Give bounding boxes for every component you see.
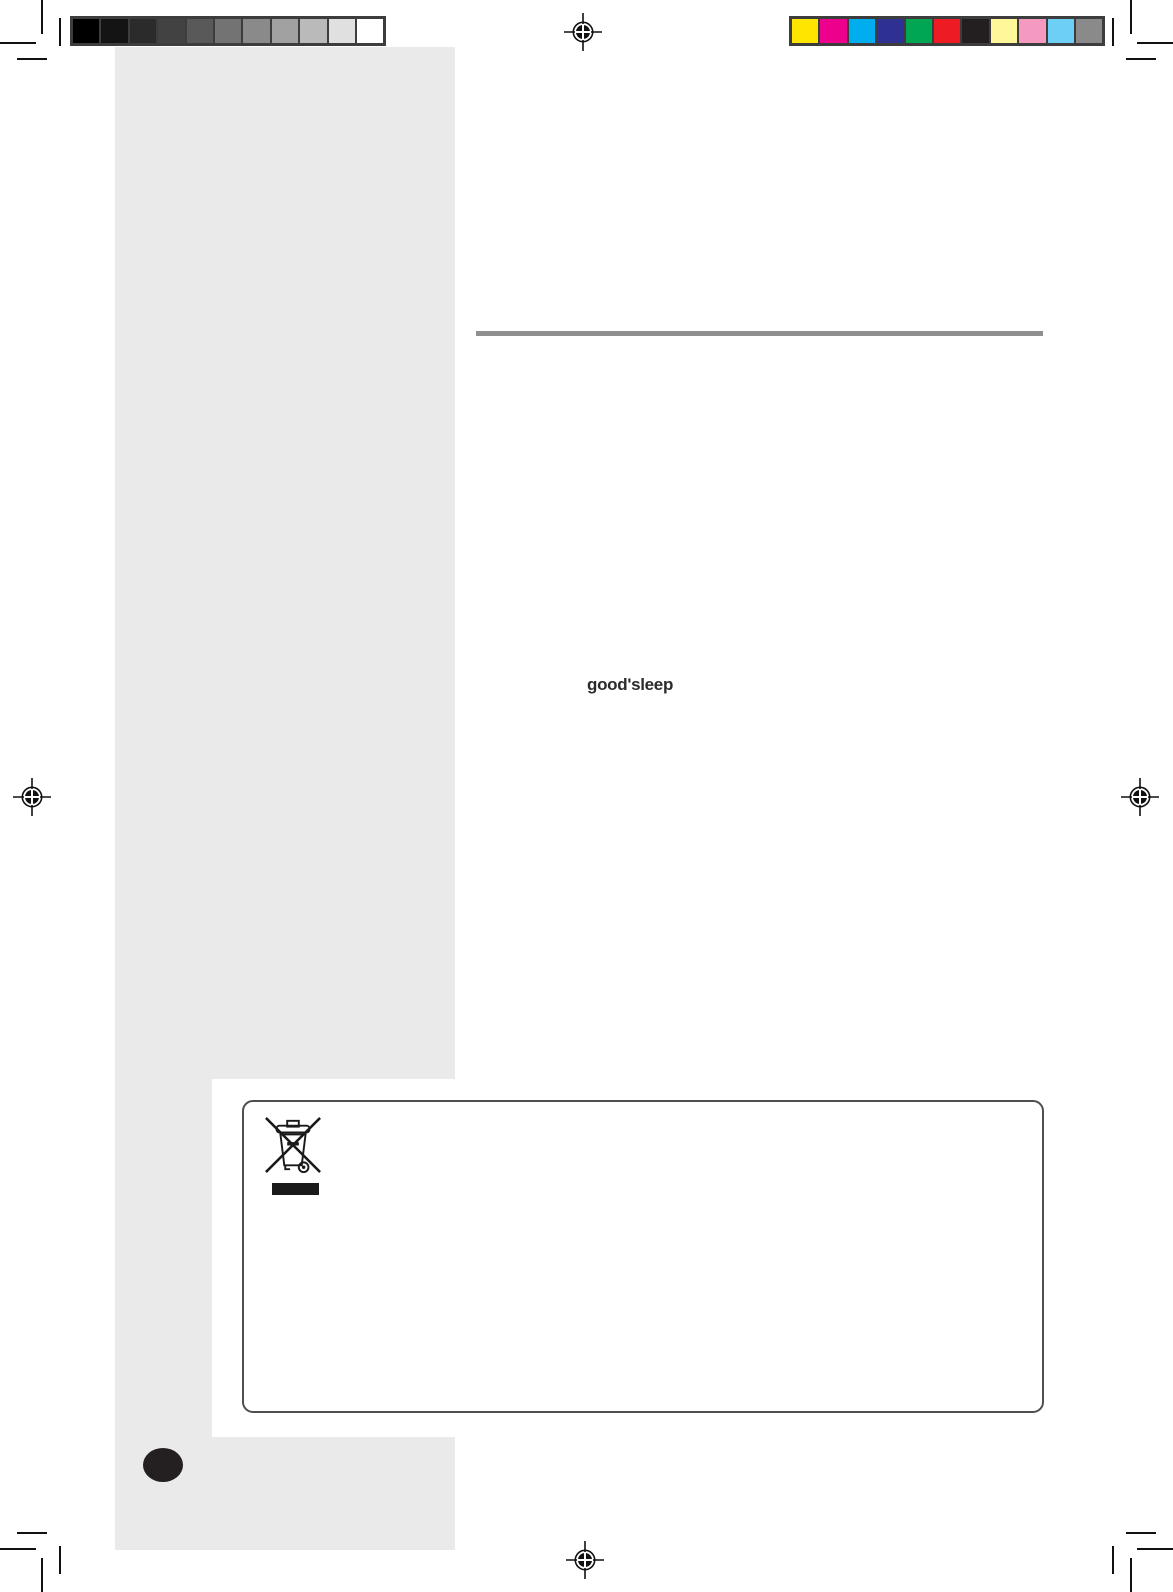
- crop-mark: [17, 58, 47, 60]
- calibration-swatch: [298, 19, 326, 43]
- calibration-swatch: [327, 19, 355, 43]
- calibration-swatch: [875, 19, 903, 43]
- calibration-swatch: [904, 19, 932, 43]
- scanned-page: good'sleep: [0, 0, 1173, 1592]
- calibration-swatch: [1074, 19, 1102, 43]
- crop-mark: [1126, 58, 1156, 60]
- calibration-swatch: [818, 19, 846, 43]
- weee-black-bar: [272, 1183, 319, 1195]
- crop-mark: [41, 0, 43, 34]
- calibration-swatch: [355, 19, 383, 43]
- calibration-swatch: [1046, 19, 1074, 43]
- calibration-swatch: [185, 19, 213, 43]
- crop-mark: [1137, 1548, 1173, 1550]
- color-calibration-bar: [789, 16, 1105, 46]
- calibration-swatch: [1017, 19, 1045, 43]
- weee-crossed-out-wheeled-bin-icon: [264, 1113, 322, 1177]
- registration-mark-icon: [563, 12, 603, 52]
- brand-text: good'sleep: [587, 675, 673, 695]
- calibration-swatch: [989, 19, 1017, 43]
- calibration-swatch: [792, 19, 818, 43]
- crop-mark: [0, 42, 36, 44]
- section-divider: [476, 331, 1043, 336]
- calibration-swatch: [128, 19, 156, 43]
- crop-mark: [59, 18, 61, 46]
- calibration-swatch: [99, 19, 127, 43]
- sidebar-band-strip: [115, 1079, 212, 1437]
- page-number-dot: [143, 1448, 183, 1482]
- crop-mark: [1130, 1558, 1132, 1592]
- sidebar-band-top: [115, 47, 455, 1079]
- weee-notice-box: [242, 1100, 1044, 1413]
- grayscale-calibration-bar: [70, 16, 386, 46]
- calibration-swatch: [241, 19, 269, 43]
- crop-mark: [17, 1532, 47, 1534]
- registration-mark-icon: [1120, 777, 1160, 817]
- crop-mark: [1112, 1546, 1114, 1574]
- crop-mark: [1137, 42, 1173, 44]
- calibration-swatch: [270, 19, 298, 43]
- crop-mark: [41, 1558, 43, 1592]
- calibration-swatch: [847, 19, 875, 43]
- calibration-swatch: [73, 19, 99, 43]
- calibration-swatch: [156, 19, 184, 43]
- registration-mark-icon: [12, 777, 52, 817]
- registration-mark-icon: [565, 1540, 605, 1580]
- crop-mark: [59, 1546, 61, 1574]
- crop-mark: [0, 1548, 36, 1550]
- calibration-swatch: [932, 19, 960, 43]
- crop-mark: [1112, 18, 1114, 46]
- crop-mark: [1126, 1532, 1156, 1534]
- calibration-swatch: [960, 19, 988, 43]
- crop-mark: [1130, 0, 1132, 34]
- calibration-swatch: [213, 19, 241, 43]
